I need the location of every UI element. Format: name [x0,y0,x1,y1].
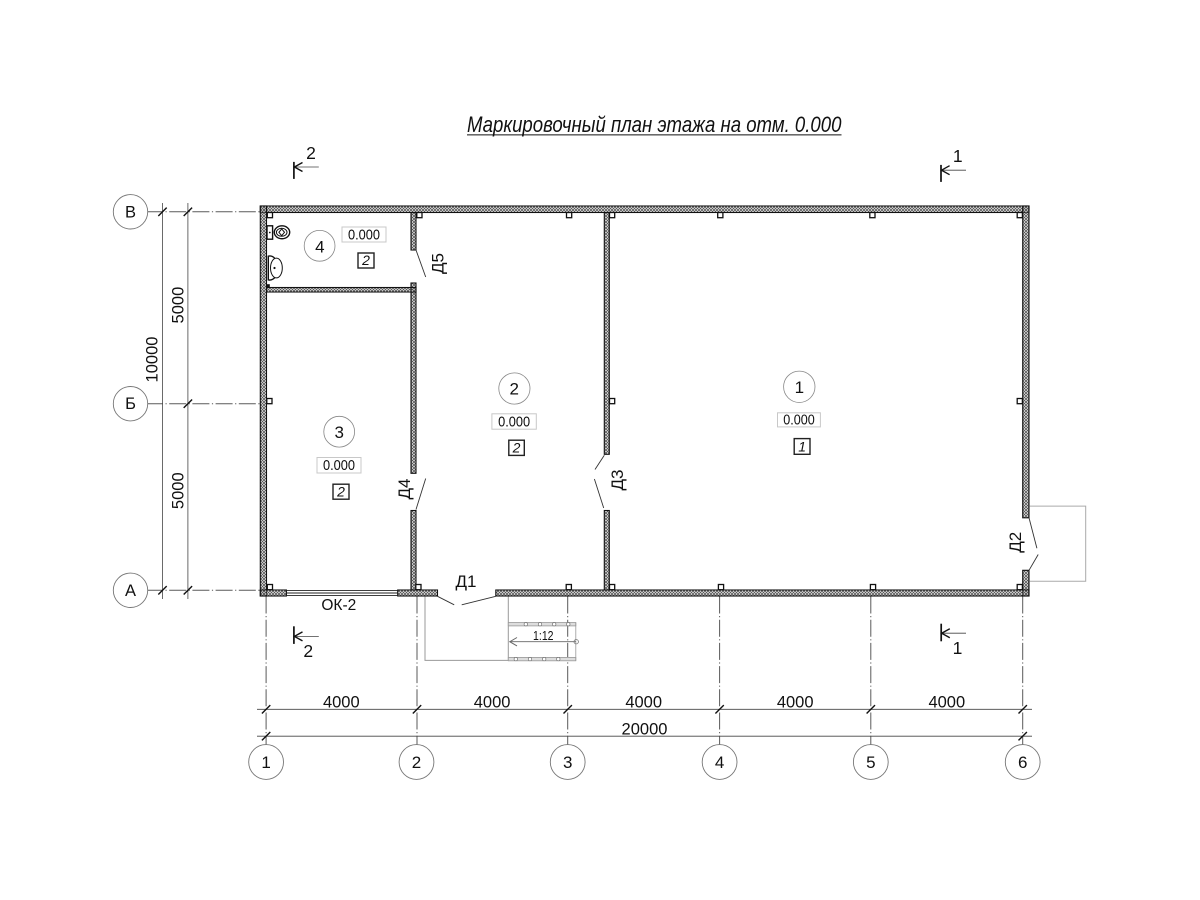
svg-text:2: 2 [509,379,518,398]
svg-text:5000: 5000 [169,472,187,509]
svg-text:0.000: 0.000 [348,226,380,243]
svg-text:2: 2 [512,440,521,456]
svg-text:1: 1 [798,438,806,454]
svg-text:3: 3 [563,753,572,772]
svg-text:4000: 4000 [928,693,965,711]
svg-text:Д2: Д2 [1006,532,1025,553]
svg-text:Маркировочный план этажа на от: Маркировочный план этажа на отм. 0.000 [467,112,842,137]
svg-text:5000: 5000 [169,287,187,324]
svg-text:2: 2 [306,143,316,163]
svg-text:2: 2 [412,753,421,772]
svg-text:0.000: 0.000 [498,413,530,430]
svg-text:1: 1 [953,638,963,658]
svg-text:А: А [125,582,136,600]
svg-text:10000: 10000 [144,337,162,383]
svg-text:Б: Б [125,395,136,413]
svg-text:1:12: 1:12 [533,629,554,643]
svg-text:4000: 4000 [474,693,511,711]
svg-text:ОК-2: ОК-2 [321,597,356,614]
svg-text:В: В [125,203,136,221]
svg-text:5: 5 [866,753,875,772]
svg-text:4000: 4000 [323,693,360,711]
svg-text:Д3: Д3 [608,470,627,491]
svg-text:0.000: 0.000 [323,457,355,474]
svg-text:4000: 4000 [777,693,814,711]
svg-text:4: 4 [315,237,324,256]
svg-text:Д1: Д1 [456,572,477,591]
svg-text:6: 6 [1018,753,1027,772]
svg-text:Д5: Д5 [428,253,447,274]
svg-text:2: 2 [361,252,370,268]
svg-text:4: 4 [715,753,724,772]
svg-text:Д4: Д4 [395,479,414,500]
svg-text:1: 1 [261,753,270,772]
svg-text:2: 2 [336,483,345,499]
svg-text:1: 1 [953,146,963,166]
svg-text:1: 1 [795,378,804,397]
svg-text:3: 3 [334,423,343,442]
svg-text:2: 2 [303,641,313,661]
svg-text:20000: 20000 [622,720,668,738]
svg-text:4000: 4000 [625,693,662,711]
svg-text:0.000: 0.000 [783,413,815,429]
